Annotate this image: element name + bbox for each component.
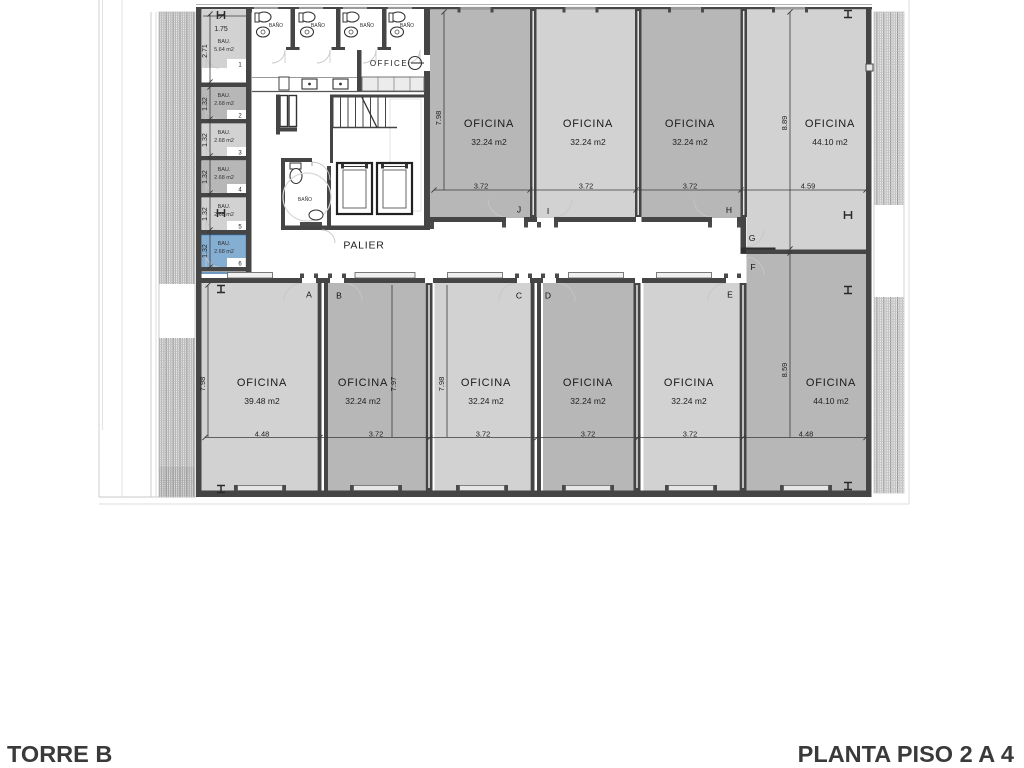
svg-text:J: J: [517, 205, 521, 215]
svg-text:OFICINA: OFICINA: [806, 377, 856, 389]
svg-text:7.98: 7.98: [434, 111, 443, 126]
svg-text:OFICINA: OFICINA: [563, 377, 613, 389]
svg-text:32.24 m2: 32.24 m2: [672, 137, 708, 147]
svg-text:1.32: 1.32: [202, 244, 209, 258]
svg-text:3.72: 3.72: [369, 430, 384, 439]
svg-text:BAU.: BAU.: [218, 130, 231, 136]
svg-text:G: G: [749, 233, 756, 243]
svg-text:PLANTA PISO 2 A 4: PLANTA PISO 2 A 4: [798, 741, 1014, 767]
svg-text:C: C: [516, 291, 522, 301]
svg-text:3.72: 3.72: [579, 182, 594, 191]
svg-text:32.24 m2: 32.24 m2: [570, 396, 606, 406]
svg-text:44.10 m2: 44.10 m2: [813, 396, 849, 406]
svg-text:BAÑO: BAÑO: [360, 22, 374, 29]
svg-text:3.72: 3.72: [581, 430, 596, 439]
svg-text:OFFICE: OFFICE: [370, 59, 408, 68]
svg-text:BAU.: BAU.: [218, 39, 231, 45]
svg-text:BAU.: BAU.: [218, 167, 231, 173]
svg-text:F: F: [750, 262, 755, 272]
svg-text:OFICINA: OFICINA: [464, 118, 514, 130]
svg-text:3.72: 3.72: [476, 430, 491, 439]
svg-text:OFICINA: OFICINA: [563, 118, 613, 130]
svg-text:3.72: 3.72: [474, 182, 489, 191]
svg-text:1.32: 1.32: [202, 170, 209, 184]
svg-text:OFICINA: OFICINA: [664, 377, 714, 389]
svg-text:8.59: 8.59: [780, 363, 789, 378]
svg-text:B: B: [336, 291, 342, 301]
svg-text:OFICINA: OFICINA: [665, 118, 715, 130]
svg-text:BAU.: BAU.: [218, 241, 231, 247]
svg-text:BAÑO: BAÑO: [269, 22, 283, 29]
svg-text:32.24 m2: 32.24 m2: [471, 137, 507, 147]
svg-text:4.59: 4.59: [801, 182, 816, 191]
svg-text:2.68 m2: 2.68 m2: [214, 249, 234, 255]
svg-text:BAÑO: BAÑO: [400, 22, 414, 29]
svg-text:32.24 m2: 32.24 m2: [345, 396, 381, 406]
svg-text:2.71: 2.71: [202, 44, 209, 58]
svg-text:D: D: [545, 291, 551, 301]
svg-text:BAÑO: BAÑO: [298, 196, 312, 203]
svg-text:OFICINA: OFICINA: [237, 377, 287, 389]
svg-text:1.32: 1.32: [202, 97, 209, 111]
svg-text:7.98: 7.98: [437, 377, 446, 392]
svg-text:TORRE B: TORRE B: [7, 741, 112, 767]
svg-text:39.48 m2: 39.48 m2: [244, 396, 280, 406]
svg-text:7.97: 7.97: [389, 377, 398, 392]
svg-text:32.24 m2: 32.24 m2: [570, 137, 606, 147]
svg-text:7.98: 7.98: [198, 377, 207, 392]
svg-text:PALIER: PALIER: [343, 240, 384, 252]
svg-text:4.48: 4.48: [799, 430, 814, 439]
svg-text:4.48: 4.48: [255, 430, 270, 439]
svg-text:32.24 m2: 32.24 m2: [468, 396, 504, 406]
svg-text:BAÑO: BAÑO: [311, 22, 325, 29]
svg-text:44.10 m2: 44.10 m2: [812, 137, 848, 147]
svg-text:5.64 m2: 5.64 m2: [214, 47, 234, 53]
svg-text:1.32: 1.32: [202, 133, 209, 147]
svg-text:1.75: 1.75: [214, 26, 228, 33]
svg-text:2.68 m2: 2.68 m2: [214, 138, 234, 144]
svg-text:1.32: 1.32: [202, 207, 209, 221]
svg-text:2.68 m2: 2.68 m2: [214, 175, 234, 181]
svg-text:OFICINA: OFICINA: [338, 377, 388, 389]
svg-text:8.89: 8.89: [780, 116, 789, 131]
svg-text:H: H: [726, 205, 732, 215]
svg-text:I: I: [547, 206, 549, 216]
svg-text:A: A: [306, 290, 312, 300]
svg-text:32.24 m2: 32.24 m2: [671, 396, 707, 406]
svg-text:OFICINA: OFICINA: [461, 377, 511, 389]
svg-text:2.68 m2: 2.68 m2: [214, 101, 234, 107]
svg-text:E: E: [727, 290, 733, 300]
svg-text:OFICINA: OFICINA: [805, 118, 855, 130]
svg-text:3.72: 3.72: [683, 430, 698, 439]
svg-text:3.72: 3.72: [683, 182, 698, 191]
svg-text:BAU.: BAU.: [218, 93, 231, 99]
